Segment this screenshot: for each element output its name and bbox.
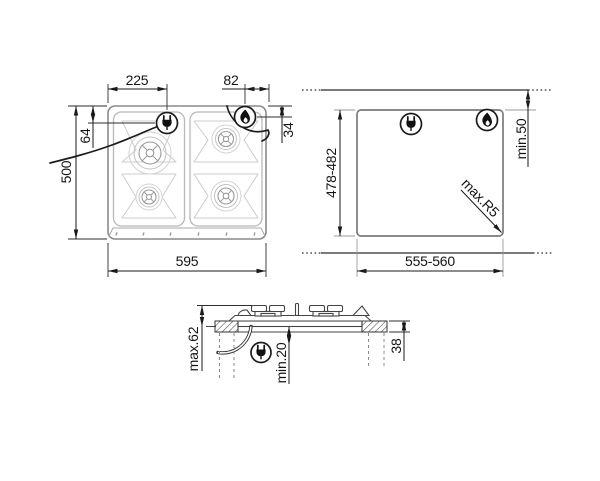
- hob-top-view: 225 82 64 34 500: [50, 72, 296, 277]
- power-plug-icon: [157, 113, 178, 134]
- dim-label-478-482: 478-482: [323, 148, 339, 198]
- dim-cutout-depth: 478-482: [323, 110, 355, 236]
- hob-flange: [229, 316, 371, 322]
- dim-label-38: 38: [388, 338, 404, 354]
- worktop-cutout-view: 478-482 min.50 max.R5 555-560: [302, 90, 553, 277]
- side-section-view: max.62 min.20 38: [185, 304, 410, 385]
- dim-flame-from-right: 82: [222, 72, 269, 104]
- dim-label-82: 82: [223, 72, 239, 88]
- dim-label-min20: min.20: [273, 342, 289, 383]
- dim-under-clearance: min.20: [273, 327, 289, 385]
- diagram-canvas: 225 82 64 34 500: [0, 0, 600, 481]
- dim-hob-width: 595: [108, 243, 266, 277]
- worktop-section-right: [362, 321, 387, 332]
- power-plug-icon: [401, 114, 422, 135]
- cabinet-side-lines: [220, 333, 385, 379]
- installation-diagram: 225 82 64 34 500: [0, 0, 600, 481]
- gas-flame-icon: [477, 110, 498, 131]
- dim-cutout-width: 555-560: [357, 239, 503, 277]
- gas-flame-icon: [235, 107, 256, 128]
- dim-label-min50: min.50: [513, 118, 529, 159]
- dim-worktop-thickness: 38: [388, 321, 410, 361]
- burner-profile-left: [252, 306, 285, 317]
- dim-label-max62: max.62: [185, 326, 201, 371]
- dim-rear-clearance: min.50: [505, 90, 536, 167]
- igniter-pin: [296, 304, 299, 316]
- dim-label-64: 64: [77, 128, 93, 144]
- dim-label-225: 225: [126, 72, 149, 88]
- dim-plug-from-left: 225: [108, 72, 167, 110]
- hob-left-edge-profile: [238, 310, 251, 316]
- dim-hob-depth: 500: [58, 106, 107, 239]
- burner-profile-right: [310, 306, 343, 317]
- hob-right-edge-profile: [353, 306, 369, 316]
- dim-label-500: 500: [58, 160, 74, 183]
- dim-label-34: 34: [280, 122, 296, 138]
- power-plug-icon: [251, 343, 271, 363]
- dim-label-595: 595: [176, 253, 199, 269]
- dim-label-555-560: 555-560: [405, 253, 455, 269]
- hob-underbox: [238, 321, 362, 327]
- worktop-section-left: [215, 321, 238, 332]
